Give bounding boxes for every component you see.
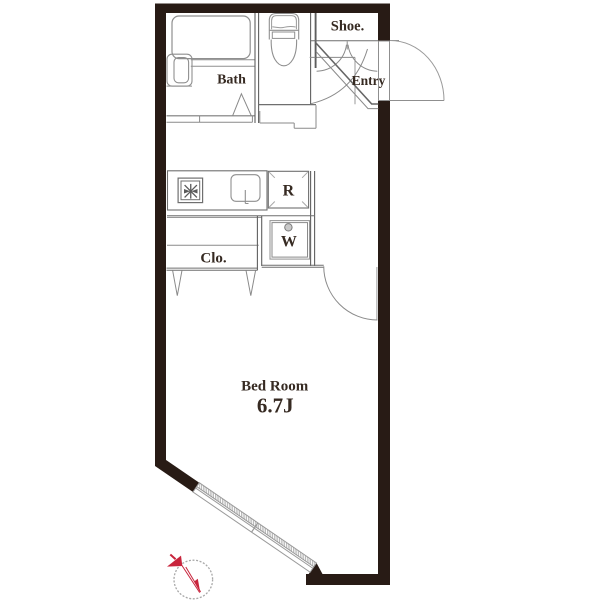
svg-text:R: R bbox=[283, 183, 295, 200]
svg-text:Bed Room: Bed Room bbox=[241, 379, 309, 395]
svg-text:W: W bbox=[281, 234, 297, 251]
svg-text:Clo.: Clo. bbox=[200, 251, 227, 267]
svg-text:6.7J: 6.7J bbox=[257, 394, 294, 418]
svg-text:Entry: Entry bbox=[352, 73, 386, 88]
svg-text:Bath: Bath bbox=[217, 73, 246, 88]
svg-text:Shoe.: Shoe. bbox=[331, 19, 364, 35]
